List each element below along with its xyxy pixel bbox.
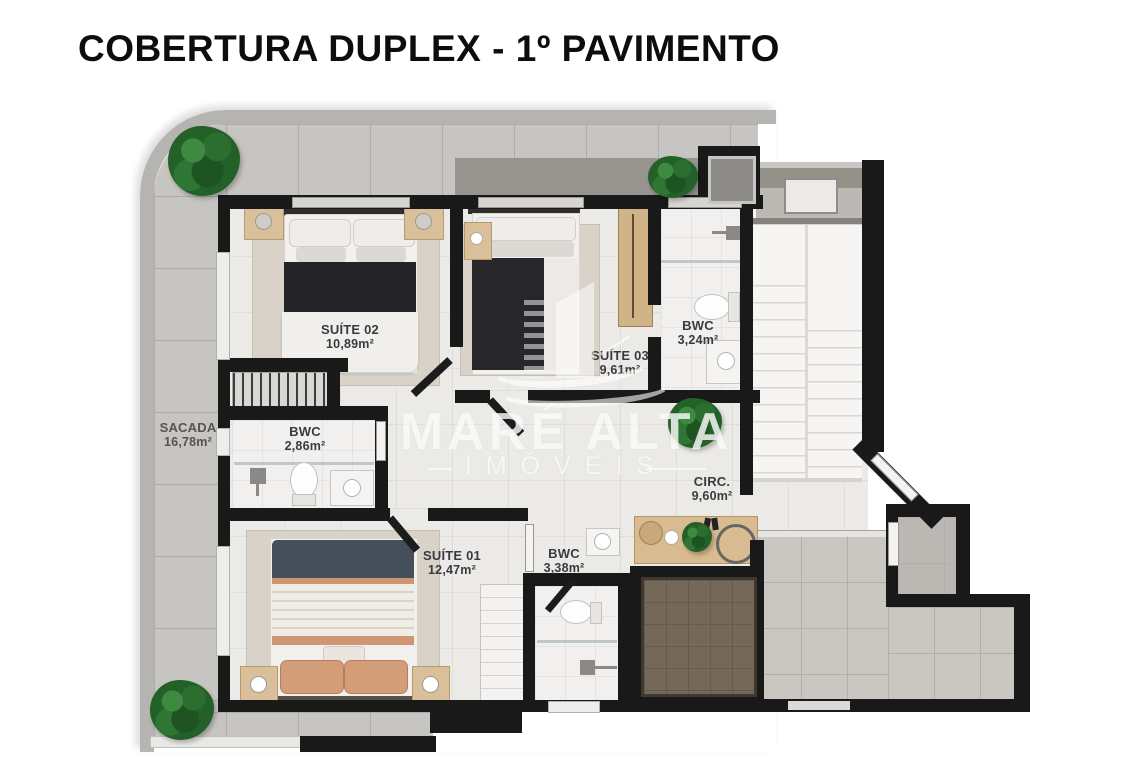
shower-arm [712, 231, 726, 234]
pillow-small [356, 247, 406, 262]
room-label-circ: CIRC. 9,60m² [692, 474, 733, 504]
window-suite02-north [292, 197, 410, 208]
shower-head [580, 660, 595, 675]
stair-treads-right [808, 330, 862, 480]
bed-suite02-blanket [284, 262, 416, 314]
wall-east [862, 160, 884, 452]
shower-arm [256, 484, 259, 496]
rear-terrace-wing [888, 607, 1014, 702]
toilet [290, 462, 318, 498]
room-name: BWC [678, 318, 719, 333]
room-area: 10,89m² [321, 337, 379, 352]
room-label-bwc-top: BWC 3,24m² [678, 318, 719, 348]
pillow [344, 660, 408, 694]
bed-suite01-band [272, 636, 414, 645]
balcony-rail [752, 218, 864, 224]
rear-terrace-floor [755, 536, 888, 702]
closet-rack [232, 372, 332, 408]
door-niche [888, 522, 899, 566]
room-label-suite03: SUÍTE 03 9,61m² [591, 348, 649, 378]
room-area: 12,47m² [423, 563, 481, 578]
terrace-door-track [755, 530, 888, 537]
terrace-bottom-parapet [300, 736, 436, 752]
wall-niche-east [956, 504, 970, 606]
window-suite03-north [478, 197, 584, 208]
planter-bed [641, 577, 757, 697]
bed-suite03-blanket [472, 258, 544, 370]
room-label-bwc-left: BWC 2,86m² [285, 424, 326, 454]
room-name: SUÍTE 01 [423, 548, 481, 563]
shower-glass [537, 640, 617, 643]
rear-niche-floor [898, 517, 958, 594]
wardrobe-handle [632, 214, 634, 318]
room-label-sacada: SACADA 16,78m² [160, 420, 217, 450]
shower-glass [661, 260, 745, 263]
stool [639, 521, 663, 545]
room-name: BWC [544, 546, 585, 561]
stair-bottom-edge [752, 478, 862, 482]
toilet [694, 294, 730, 320]
wall-wing-east [1014, 594, 1030, 712]
pillow [289, 219, 351, 247]
room-label-bwc-bottom: BWC 3,38m² [544, 546, 585, 576]
wall-suite03-bwc-a [648, 195, 661, 305]
window-suite01 [216, 546, 230, 656]
door-suite01-east [525, 524, 534, 572]
rear-railing [788, 701, 850, 710]
mug [470, 232, 483, 245]
door-leaf-terrace [870, 453, 918, 501]
room-label-suite01: SUÍTE 01 12,47m² [423, 548, 481, 578]
room-area: 9,60m² [692, 489, 733, 504]
room-name: SUÍTE 02 [321, 322, 379, 337]
wardrobe-suite01 [480, 584, 525, 702]
wall-south-block [430, 700, 522, 733]
wall-suite02-suite03 [450, 195, 463, 347]
sink [594, 533, 611, 550]
staircase [752, 207, 862, 480]
bed-suite01-blanket-navy [272, 540, 414, 580]
sink [343, 479, 361, 497]
room-area: 3,24m² [678, 333, 719, 348]
sink [717, 352, 735, 370]
room-name: SACADA [160, 420, 217, 435]
toilet-tank [590, 602, 602, 624]
room-area: 3,38m² [544, 561, 585, 576]
shower-head [250, 468, 266, 484]
bed-suite01-striped-throw [272, 584, 414, 636]
window-bwc-bottom [548, 701, 600, 713]
shower-head [726, 226, 740, 240]
shower-arm [595, 666, 617, 669]
wall-stair-west [740, 195, 753, 495]
mug [664, 530, 679, 545]
room-name: SUÍTE 03 [591, 348, 649, 363]
room-name: BWC [285, 424, 326, 439]
room-area: 2,86m² [285, 439, 326, 454]
window-bwc-left [216, 428, 230, 456]
stair-treads-left [752, 285, 805, 480]
pillow [280, 660, 344, 694]
page-title: COBERTURA DUPLEX - 1º PAVIMENTO [78, 28, 780, 70]
wall-wing-north [886, 594, 1030, 607]
wall-suite01-east [523, 573, 535, 702]
toilet-tank [728, 292, 740, 322]
wall-suite01-north [218, 508, 528, 521]
window-suite02 [216, 252, 230, 360]
room-name: CIRC. [692, 474, 733, 489]
toilet-tank [292, 494, 316, 506]
bed-suite03-sheet [544, 258, 578, 370]
toilet [560, 600, 592, 624]
door-bwc-left [376, 421, 386, 461]
pillow-small [296, 247, 346, 262]
room-area: 9,61m² [591, 363, 649, 378]
ac-unit [784, 178, 838, 214]
wall-bwc-left-north [218, 406, 388, 420]
room-label-suite02: SUÍTE 02 10,89m² [321, 322, 379, 352]
room-area: 16,78m² [160, 435, 217, 450]
shaft-opening [708, 156, 756, 204]
